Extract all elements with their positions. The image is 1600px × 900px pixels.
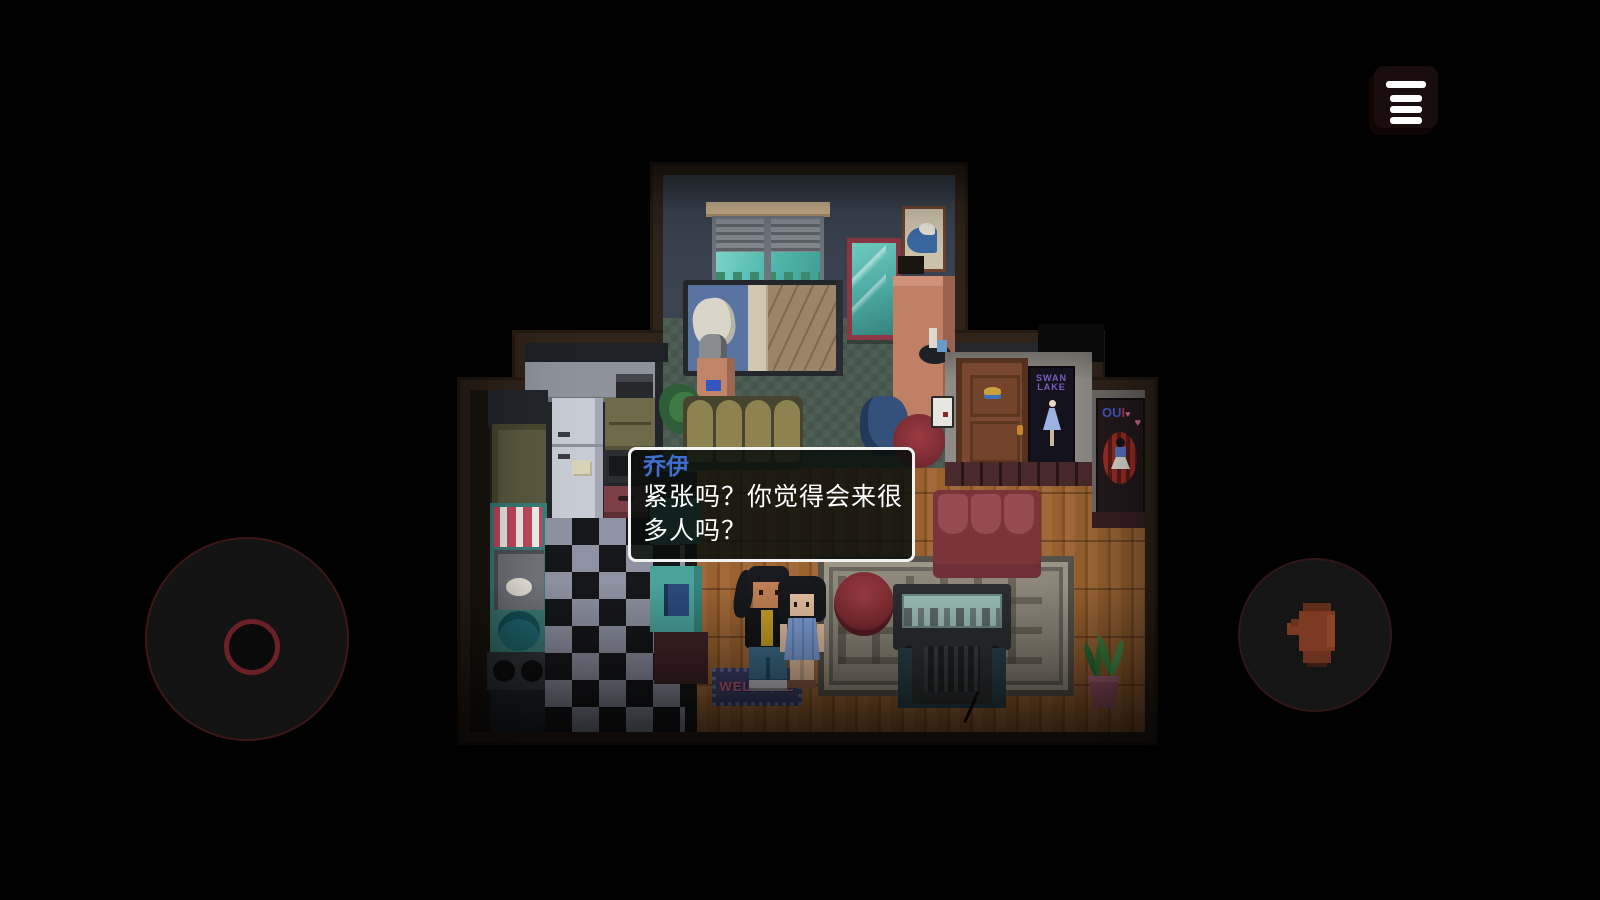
knife-block [494,507,542,547]
out-letter: U [1112,405,1121,420]
teal-counter [490,503,547,655]
couch-cushion [938,494,968,534]
maroon-cabinet [654,632,708,684]
sink-dish [506,578,532,596]
wardrobe-frame-small [898,256,924,274]
ballerina-legs [1050,430,1054,446]
dialogue-box[interactable]: 乔伊 紧张吗？你觉得会来很 多人吗？ [628,447,915,562]
table-glass [902,594,1002,628]
teal-pot [498,611,540,651]
entry-baseboard [945,462,1092,486]
stove [487,652,549,690]
window-mullion [764,219,771,284]
dialogue-speaker-name: 乔伊 [643,452,912,480]
book-on-table [664,584,689,616]
duck-sticker [984,387,1001,395]
swan-poster-title-2: LAKE [1030,383,1073,392]
kitchen-wall-top [525,343,668,362]
blue-trinket [937,340,947,352]
bed-fold [748,285,770,371]
joy-eye [759,590,763,595]
heart-icon: ♥ [1134,418,1141,429]
fridge-note [572,460,590,474]
game-screen: SWAN LAKE OUI♥ ♥ [0,0,1600,900]
red-couch [933,490,1041,578]
dancer-hair [1116,438,1125,447]
switch-dot [943,412,948,417]
girl-eye [794,602,797,607]
bed-footboard [836,280,843,376]
bed-blanket [768,285,839,371]
candle [929,328,937,348]
wave-foam [919,223,935,235]
kitchen-sink [494,550,544,610]
fridge-door-line [552,444,603,447]
ballerina-dress [1043,408,1061,430]
girl-feet [788,680,816,688]
heart-icon: ♥ [1125,409,1130,419]
jeans-gap [766,657,770,681]
kitchen-cabinet [605,398,655,452]
out-letter: O [1102,405,1112,420]
girl-dress [784,618,820,660]
red-ottoman [834,572,894,636]
door-panel [970,421,1020,463]
ballerina-head [1049,400,1056,407]
action-button[interactable] [1238,558,1392,712]
girl-legs [790,660,814,682]
glass-skyline [904,608,1000,626]
dialogue-line: 紧张吗？你觉得会来很 [643,480,912,514]
right-wall-baseboard [1092,512,1145,528]
burner-right [521,660,543,682]
dialogue-line: 多人吗？ [643,514,912,548]
window-blind-housing [706,202,830,217]
door-knob [1017,425,1023,435]
girl-eye [806,602,809,607]
tv-back-panel [924,646,980,692]
crt-tv [912,638,992,704]
olive-cabinet [492,424,546,506]
fridge-handle-top [558,432,570,437]
legs-gap [800,660,804,682]
fridge [552,398,603,518]
light-switch[interactable] [931,396,954,428]
burner-left [493,660,515,682]
out-poster: OUI♥ ♥ [1096,398,1145,516]
girl-face [790,594,814,616]
teal-side-table [650,566,702,632]
potted-plant [1080,634,1128,712]
door-panel [970,375,1020,417]
hand-icon [1287,599,1343,671]
swan-lake-poster: SWAN LAKE [1028,366,1075,466]
couch-cushion [1004,494,1034,534]
front-door[interactable] [962,363,1022,468]
dancer-top [1115,447,1126,457]
joystick-knob[interactable] [224,619,280,675]
mirror-glare [852,243,886,325]
menu-button[interactable] [1374,66,1438,128]
left-column-wall [488,390,548,428]
fridge-handle-bottom [558,454,570,459]
joy-shirt [761,610,773,646]
character-girl [776,576,828,694]
couch-cushion [971,494,1001,534]
virtual-joystick[interactable] [145,537,349,741]
plant-pot [1088,676,1120,708]
cabinet-drawer-line [609,422,651,425]
